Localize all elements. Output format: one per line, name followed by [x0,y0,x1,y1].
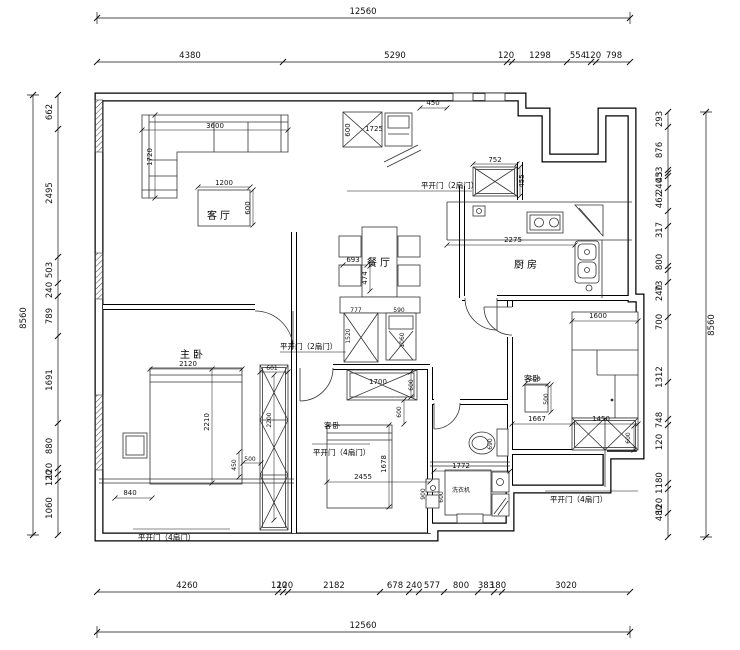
dim-right-7: 800 [655,254,665,270]
dim-right-11: 1312 [655,366,665,388]
dim-entry-step: 450 [426,99,439,107]
dim-left-6: 880 [45,438,55,454]
door-label-kitchen: 平开门（2扇门） [421,180,478,190]
chair [398,265,420,286]
chair [339,236,361,257]
dim-master-840: 840 [123,489,136,497]
dim-right-0: 293 [655,111,665,127]
dim-left-1: 2495 [45,182,55,204]
dim-left-total: 8560 [19,307,29,329]
dim-entry-width: 1725 [365,125,383,133]
dim-hallcab-depth: 455 [518,174,526,187]
dim-guest2-desk-width: 500 [529,376,541,383]
door-label-master: 平开门（2扇门） [280,341,337,351]
dim-top-3: 1298 [529,51,551,61]
dim-sideboard-w2: 590 [393,307,405,314]
dim-right-10: 700 [655,314,665,330]
dim-left-0: 662 [45,104,55,120]
dim-guest2-bed-width: 1600 [589,312,607,320]
dim-left-3: 240 [45,282,55,298]
dim-bottom-total: 12560 [349,621,376,631]
room-label-kitchen: 厨房 [514,258,540,271]
dim-guest1-bed-length: 1678 [380,455,388,473]
dim-master-bed-width: 2120 [179,360,197,368]
dim-bottom-2: 120 [277,581,293,591]
dim-bottom-3: 2182 [323,581,345,591]
dim-sideboard-h1: 1520 [345,328,352,343]
floorplan-canvas: 12560 4380 5290 120 1298 554 120 798 125… [0,0,740,650]
dim-bottom-0: 4260 [176,581,198,591]
dim-right-4: 240 [655,178,665,194]
dim-kitchen-counter: 2275 [504,236,522,244]
dim-bath-a: 900 [420,488,427,500]
dim-bath-width: 1772 [452,462,470,470]
dim-master-wardrobe-length: 2200 [266,412,273,427]
guest2-door [484,307,512,335]
dim-hallcab-width: 752 [488,156,501,164]
corner-unit [575,205,603,236]
dim-master-450: 450 [231,459,238,471]
floorplan-drawing: 12560 4380 5290 120 1298 554 120 798 125… [0,0,740,650]
bathroom-door [434,403,460,429]
dim-right-14: 1180 [655,472,665,494]
dim-guest2-gap: 1667 [528,415,546,423]
dim-top-6: 798 [606,51,622,61]
dim-bottom-7: 800 [453,581,469,591]
door-label-guest1: 平开门（4扇门） [313,447,370,457]
dim-guest2-wardrobe-depth: 600 [625,432,632,444]
dim-right-12: 748 [655,412,665,428]
dim-left-5: 1691 [45,369,55,391]
dim-left-2: 503 [45,262,55,278]
dim-guest1-cab-width: 1700 [369,378,387,386]
dim-top-0: 4380 [179,51,201,61]
dim-table-depth: 600 [244,201,252,214]
dim-sideboard-w1: 777 [350,307,362,314]
master-bed [150,368,242,484]
dim-right-9: 240 [655,285,665,301]
room-label-living: 客厅 [207,209,233,222]
nightstand [123,433,147,458]
dim-sideboard-h2: 1060 [399,332,406,347]
dim-master-500: 500 [244,456,256,463]
dim-bottom-5: 240 [406,581,422,591]
dim-toilet: 690 [487,438,494,450]
room-label-dining: 餐厅 [367,256,393,269]
chair [339,265,361,286]
dim-left-9: 1060 [45,497,55,519]
dim-top-5: 120 [585,51,601,61]
furniture [99,112,638,530]
dim-top-1: 5290 [384,51,406,61]
dim-dining-depth: 474 [361,271,369,285]
dim-sofa-width: 3600 [206,122,224,130]
dim-guest2-desk-depth: 500 [543,393,550,405]
dim-guest1-bed-width: 2455 [354,473,372,481]
room-label-guest1: 客卧 [324,420,341,430]
dim-guest1-gap: 600 [396,406,403,418]
chair [398,236,420,257]
dim-entry-depth: 600 [344,123,352,136]
dim-table-width: 1200 [215,179,233,187]
dim-master-wardrobe-width: 601 [266,365,278,372]
room-label-laundry: 洗衣机 [452,486,470,494]
dim-bottom-10: 3020 [555,581,577,591]
dim-bath-b: 600 [438,491,445,503]
dim-right-16: 480 [655,505,665,521]
dim-guest2-wardrobe-width: 1450 [592,415,610,423]
entry-door-leaf [384,145,421,167]
dim-bottom-6: 577 [424,581,440,591]
dim-top-total: 12560 [349,7,376,17]
dim-right-13: 120 [655,434,665,450]
dim-left-8: 120 [45,470,55,486]
door-label-guest2: 平开门（4扇门） [550,494,607,504]
guest1-door [300,368,333,401]
dim-bottom-9: 180 [490,581,506,591]
dim-left-4: 789 [45,308,55,324]
dim-right-5: 462 [655,192,665,208]
kitchen-door [465,298,497,330]
dim-sofa-depth: 1720 [146,148,154,166]
dim-master-bed-length: 2210 [203,413,211,431]
dim-bottom-4: 678 [387,581,403,591]
dim-guest1-cab-depth: 600 [408,379,415,391]
dim-top-2: 120 [498,51,514,61]
guest2-bed [572,312,638,418]
dim-top-4: 554 [570,51,586,61]
dim-right-1: 876 [655,142,665,158]
dim-dining-width: 693 [346,256,359,264]
dim-right-total: 8560 [707,314,717,336]
door-label-balcony: 平开门（4扇门） [138,532,195,542]
dim-right-6: 317 [655,222,665,238]
